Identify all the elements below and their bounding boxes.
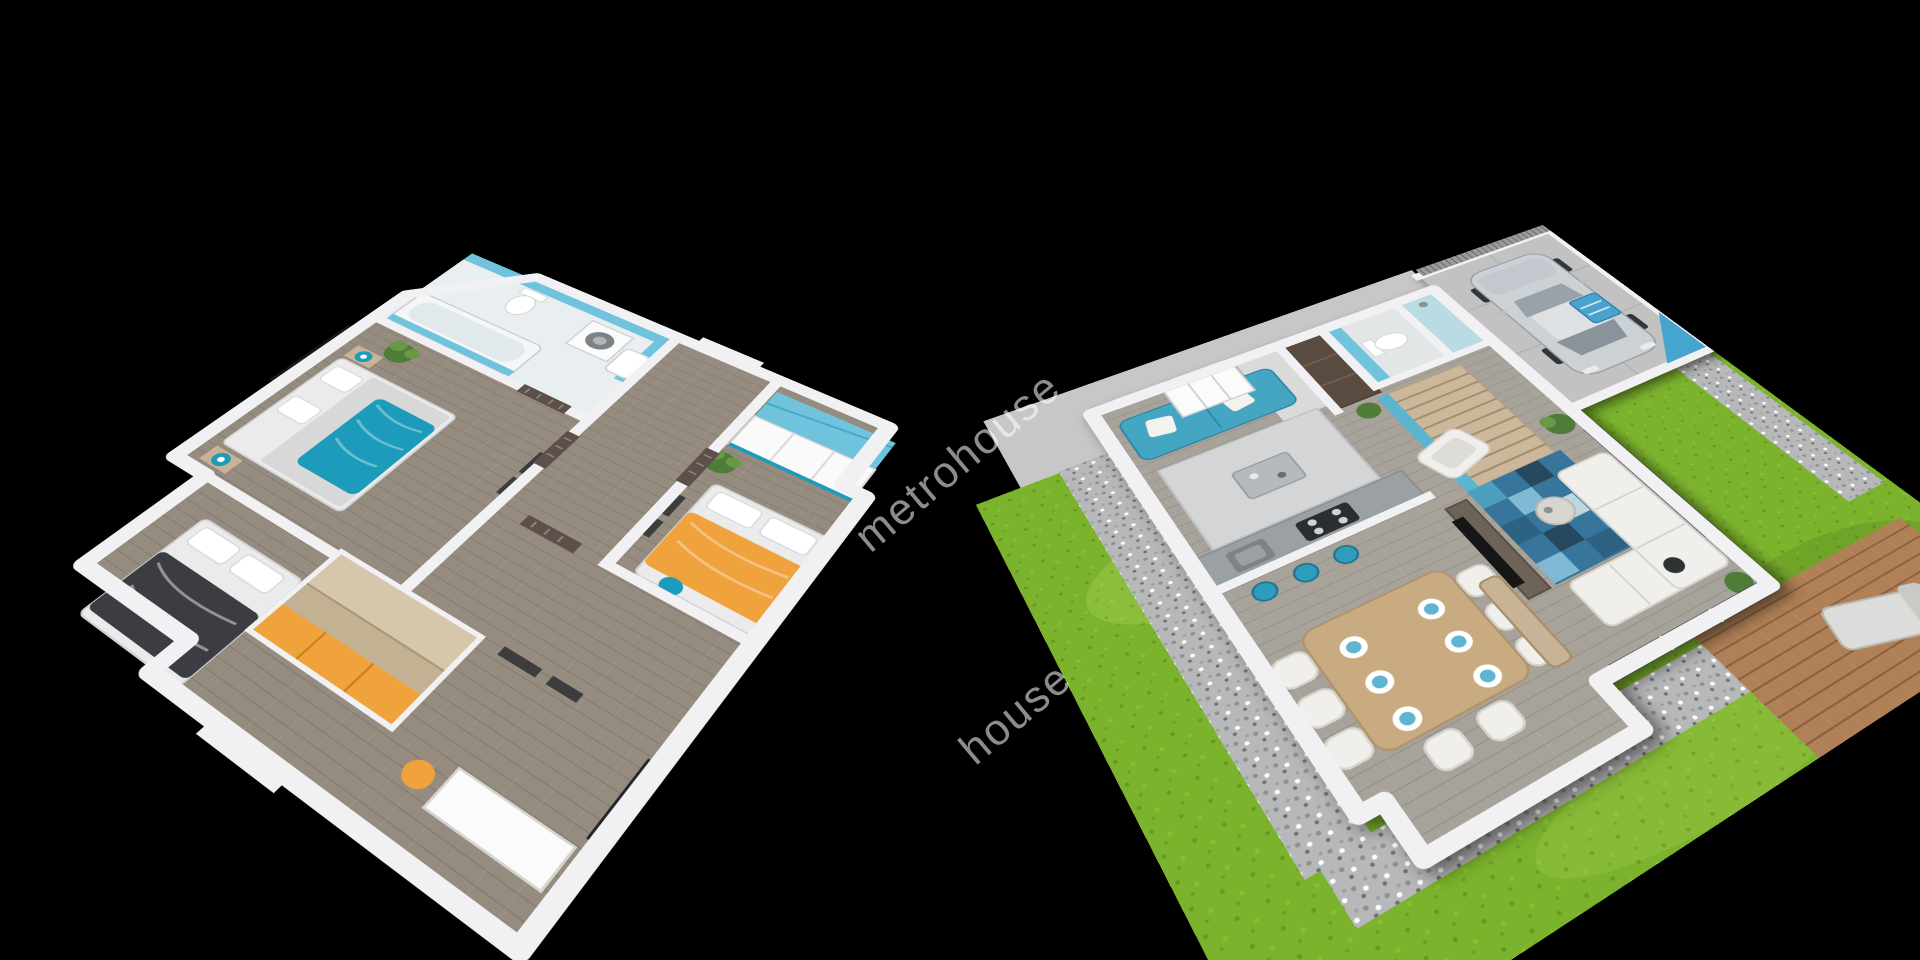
- ground-floor-group: [941, 224, 1920, 960]
- upper-floor-svg: [0, 226, 938, 960]
- ground-floor-svg: [929, 210, 1920, 960]
- upper-floor-group: [0, 240, 922, 960]
- floorplan-composite: metrohouse house: [0, 0, 1920, 960]
- upper-floor-plan-3d: [0, 226, 938, 960]
- ground-floor-plan-3d: [929, 210, 1920, 960]
